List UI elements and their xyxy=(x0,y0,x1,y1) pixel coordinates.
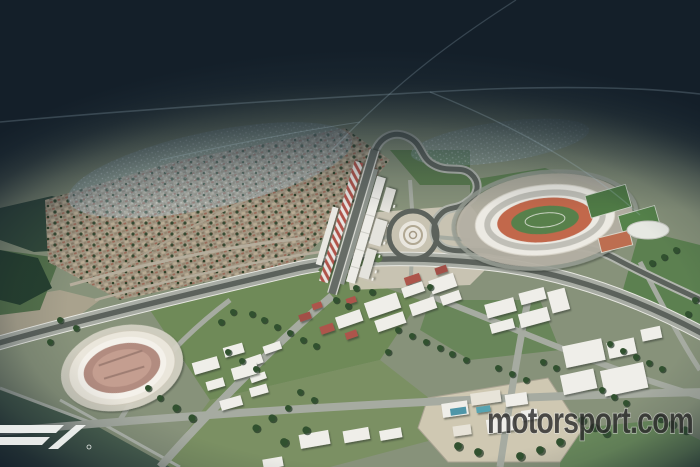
aerial-render: motorsport.com xyxy=(0,0,700,467)
motorsport-watermark: motorsport.com xyxy=(487,400,693,441)
scene-canvas: motorsport.com xyxy=(0,0,700,467)
vignette-overlay xyxy=(0,0,700,467)
